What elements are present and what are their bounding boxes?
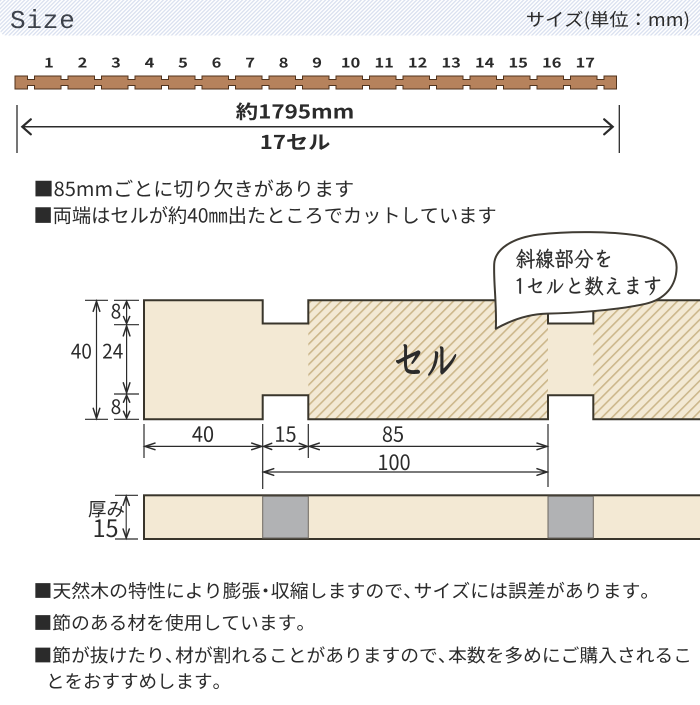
- svg-text:Size: Size: [10, 6, 76, 36]
